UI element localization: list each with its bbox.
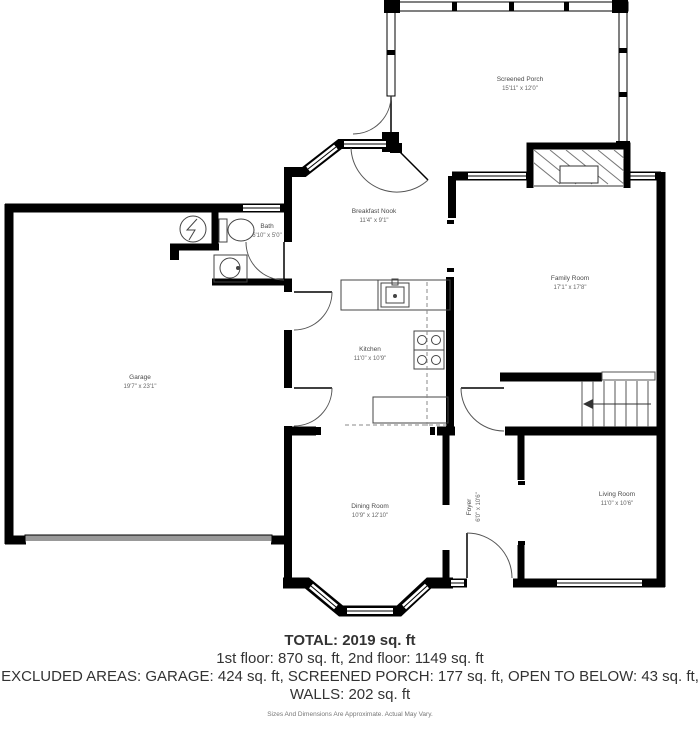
fireplace: [518, 146, 656, 188]
door-stair-hall: [461, 388, 504, 431]
room-label-foyer: Foyer: [466, 498, 473, 515]
room-dims-bath: 6'10" x 5'0": [252, 233, 282, 239]
stairs: [582, 381, 651, 427]
garage-door: [25, 535, 272, 545]
floor-plan: Screened Porch 15'11" x 12'0" Breakfast …: [0, 0, 700, 632]
room-dims-foyer: 6'0" x 10'6": [476, 492, 482, 522]
total-area-text: TOTAL: 2019 sq. ft: [0, 632, 700, 650]
room-label-bath: Bath: [260, 223, 274, 230]
room-label-screened-porch: Screened Porch: [497, 76, 544, 83]
water-heater-icon: [180, 216, 206, 242]
room-label-dining-room: Dining Room: [351, 503, 389, 510]
room-label-family-room: Family Room: [551, 275, 589, 282]
door-kitchen: [294, 292, 332, 330]
room-dims-screened-porch: 15'11" x 12'0": [502, 86, 538, 92]
door-porch: [353, 96, 391, 134]
door-bath: [246, 242, 284, 280]
room-dims-breakfast-nook: 11'4" x 9'1": [359, 218, 388, 224]
area-summary: TOTAL: 2019 sq. ft 1st floor: 870 sq. ft…: [0, 632, 700, 719]
lightning-icon: [187, 219, 197, 240]
room-label-breakfast-nook: Breakfast Nook: [352, 208, 397, 215]
floor-plan-drawing: Screened Porch 15'11" x 12'0" Breakfast …: [0, 0, 700, 632]
room-label-garage: Garage: [129, 374, 151, 381]
room-label-living-room: Living Room: [599, 491, 635, 498]
interior-walls: [170, 168, 661, 587]
room-label-kitchen: Kitchen: [359, 346, 381, 353]
toilet-icon: [228, 219, 254, 241]
room-dims-garage: 19'7" x 23'1": [124, 384, 157, 390]
toilet-tank-icon: [219, 219, 227, 242]
floors-area-text: 1st floor: 870 sq. ft, 2nd floor: 1149 s…: [0, 650, 700, 668]
room-dims-dining-room: 10'9" x 12'10": [352, 513, 388, 519]
disclaimer-text: Sizes And Dimensions Are Approximate. Ac…: [0, 711, 700, 719]
room-dims-family-room: 17'1" x 17'8": [554, 285, 587, 291]
excluded-areas-text: EXCLUDED AREAS: GARAGE: 424 sq. ft, SCRE…: [0, 668, 700, 686]
front-door: [467, 533, 512, 578]
walls-area-text: WALLS: 202 sq. ft: [0, 686, 700, 704]
room-dims-kitchen: 11'0" x 10'9": [354, 356, 386, 362]
kitchen-fixtures: [341, 279, 450, 428]
room-dims-living-room: 11'0" x 10'6": [601, 501, 633, 507]
room-label-foyer-group: Foyer 6'0" x 10'6": [466, 492, 482, 522]
door-garage-entry: [294, 388, 332, 426]
